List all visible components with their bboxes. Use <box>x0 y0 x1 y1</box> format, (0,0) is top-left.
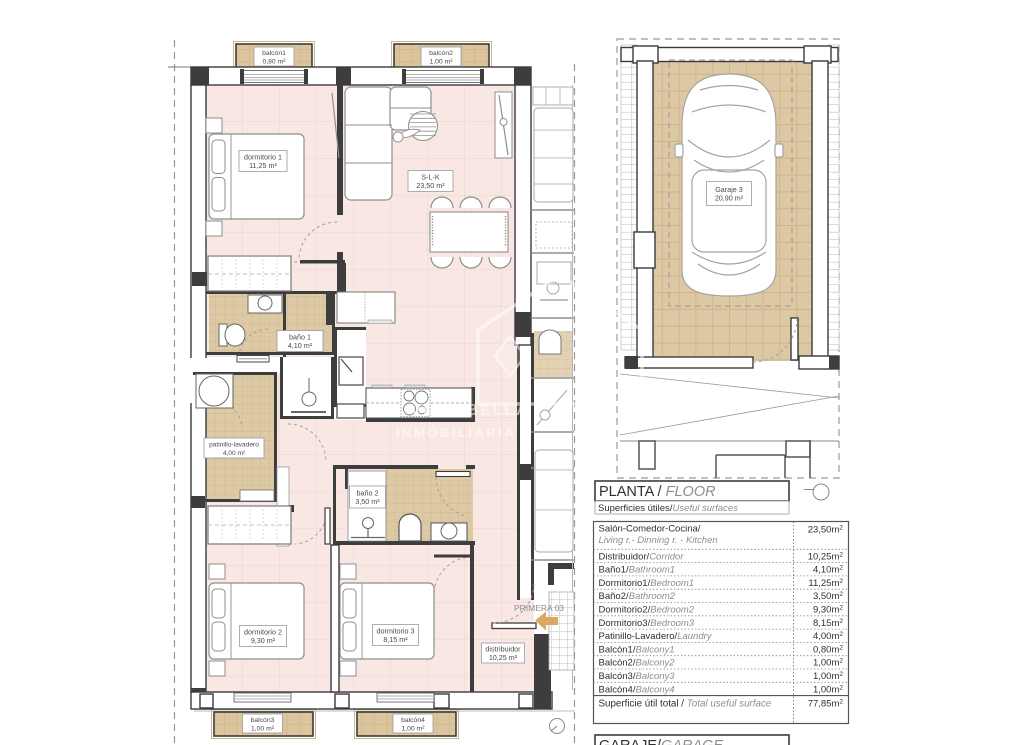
svg-text:PLANTA / FLOOR: PLANTA / FLOOR <box>599 484 716 500</box>
svg-text:Distribuidor/Corridor: Distribuidor/Corridor <box>599 551 685 562</box>
svg-text:Balcón3/Balcony3: Balcón3/Balcony3 <box>599 671 676 682</box>
svg-text:1,00m2: 1,00m2 <box>813 671 843 682</box>
svg-text:9,30 m²: 9,30 m² <box>251 636 276 645</box>
svg-text:11,25m2: 11,25m2 <box>808 578 843 589</box>
svg-text:4,00 m²: 4,00 m² <box>223 450 246 457</box>
svg-text:77,85m2: 77,85m2 <box>808 699 844 710</box>
svg-text:Baño1/Bathroom1: Baño1/Bathroom1 <box>599 565 676 576</box>
svg-text:Balcón1/Balcony1: Balcón1/Balcony1 <box>599 644 675 655</box>
svg-text:4,10m2: 4,10m2 <box>813 565 843 576</box>
svg-text:23,50 m²: 23,50 m² <box>416 181 445 190</box>
svg-text:1,00 m²: 1,00 m² <box>401 726 425 733</box>
svg-text:4,10 m²: 4,10 m² <box>288 341 313 350</box>
svg-text:Superficie útil total / Total: Superficie útil total / Total useful sur… <box>599 699 772 710</box>
svg-text:Living r.- Dinning r. - Kitche: Living r.- Dinning r. - Kitchen <box>599 535 718 546</box>
svg-text:0,80 m²: 0,80 m² <box>262 59 286 66</box>
svg-text:Balcón2/Balcony2: Balcón2/Balcony2 <box>599 658 676 669</box>
svg-text:Salón-Comedor-Cocina/: Salón-Comedor-Cocina/ <box>599 524 701 535</box>
svg-text:10,25 m²: 10,25 m² <box>489 653 518 662</box>
svg-text:PRIMERA 03: PRIMERA 03 <box>514 603 564 613</box>
svg-text:11,25 m²: 11,25 m² <box>249 161 277 170</box>
svg-text:Dormitorio1/Bedroom1: Dormitorio1/Bedroom1 <box>599 578 695 589</box>
svg-text:4,00m2: 4,00m2 <box>813 631 843 642</box>
svg-text:GARAJE/GARAGE: GARAJE/GARAGE <box>599 738 723 745</box>
svg-text:Patinillo-Lavadero/Laundry: Patinillo-Lavadero/Laundry <box>599 631 713 642</box>
svg-text:Balcón4/Balcony4: Balcón4/Balcony4 <box>599 684 675 695</box>
svg-text:10,25m2: 10,25m2 <box>808 551 844 562</box>
svg-text:8,15m2: 8,15m2 <box>813 618 843 629</box>
svg-text:3,50m2: 3,50m2 <box>813 591 843 602</box>
svg-text:1,00m2: 1,00m2 <box>813 658 843 669</box>
svg-text:VISTABELLA: VISTABELLA <box>410 402 529 419</box>
svg-text:23,50m2: 23,50m2 <box>808 525 844 536</box>
svg-text:balcón3: balcón3 <box>251 717 275 724</box>
svg-text:Superficies útiles/Useful surf: Superficies útiles/Useful surfaces <box>598 503 738 514</box>
svg-text:Baño2/Bathroom2: Baño2/Bathroom2 <box>599 591 676 602</box>
svg-text:20,90 m²: 20,90 m² <box>715 194 744 203</box>
svg-text:balcón1: balcón1 <box>262 50 286 57</box>
svg-text:INMOBILIARIA: INMOBILIARIA <box>396 425 516 440</box>
svg-text:patinillo-lavadero: patinillo-lavadero <box>209 442 259 449</box>
svg-text:balcón4: balcón4 <box>401 717 425 724</box>
svg-text:balcón2: balcón2 <box>429 50 453 57</box>
svg-text:Dormitorio3/Bedroom3: Dormitorio3/Bedroom3 <box>599 618 695 629</box>
svg-text:1,00 m²: 1,00 m² <box>251 726 275 733</box>
svg-text:1,00m2: 1,00m2 <box>813 684 843 695</box>
svg-text:0,80m2: 0,80m2 <box>813 644 843 655</box>
svg-text:Dormitorio2/Bedroom2: Dormitorio2/Bedroom2 <box>599 605 695 616</box>
svg-text:8,15 m²: 8,15 m² <box>383 635 408 644</box>
svg-text:1,00 m²: 1,00 m² <box>429 59 453 66</box>
svg-text:3,50 m²: 3,50 m² <box>355 497 380 506</box>
svg-text:9,30m2: 9,30m2 <box>813 605 843 616</box>
